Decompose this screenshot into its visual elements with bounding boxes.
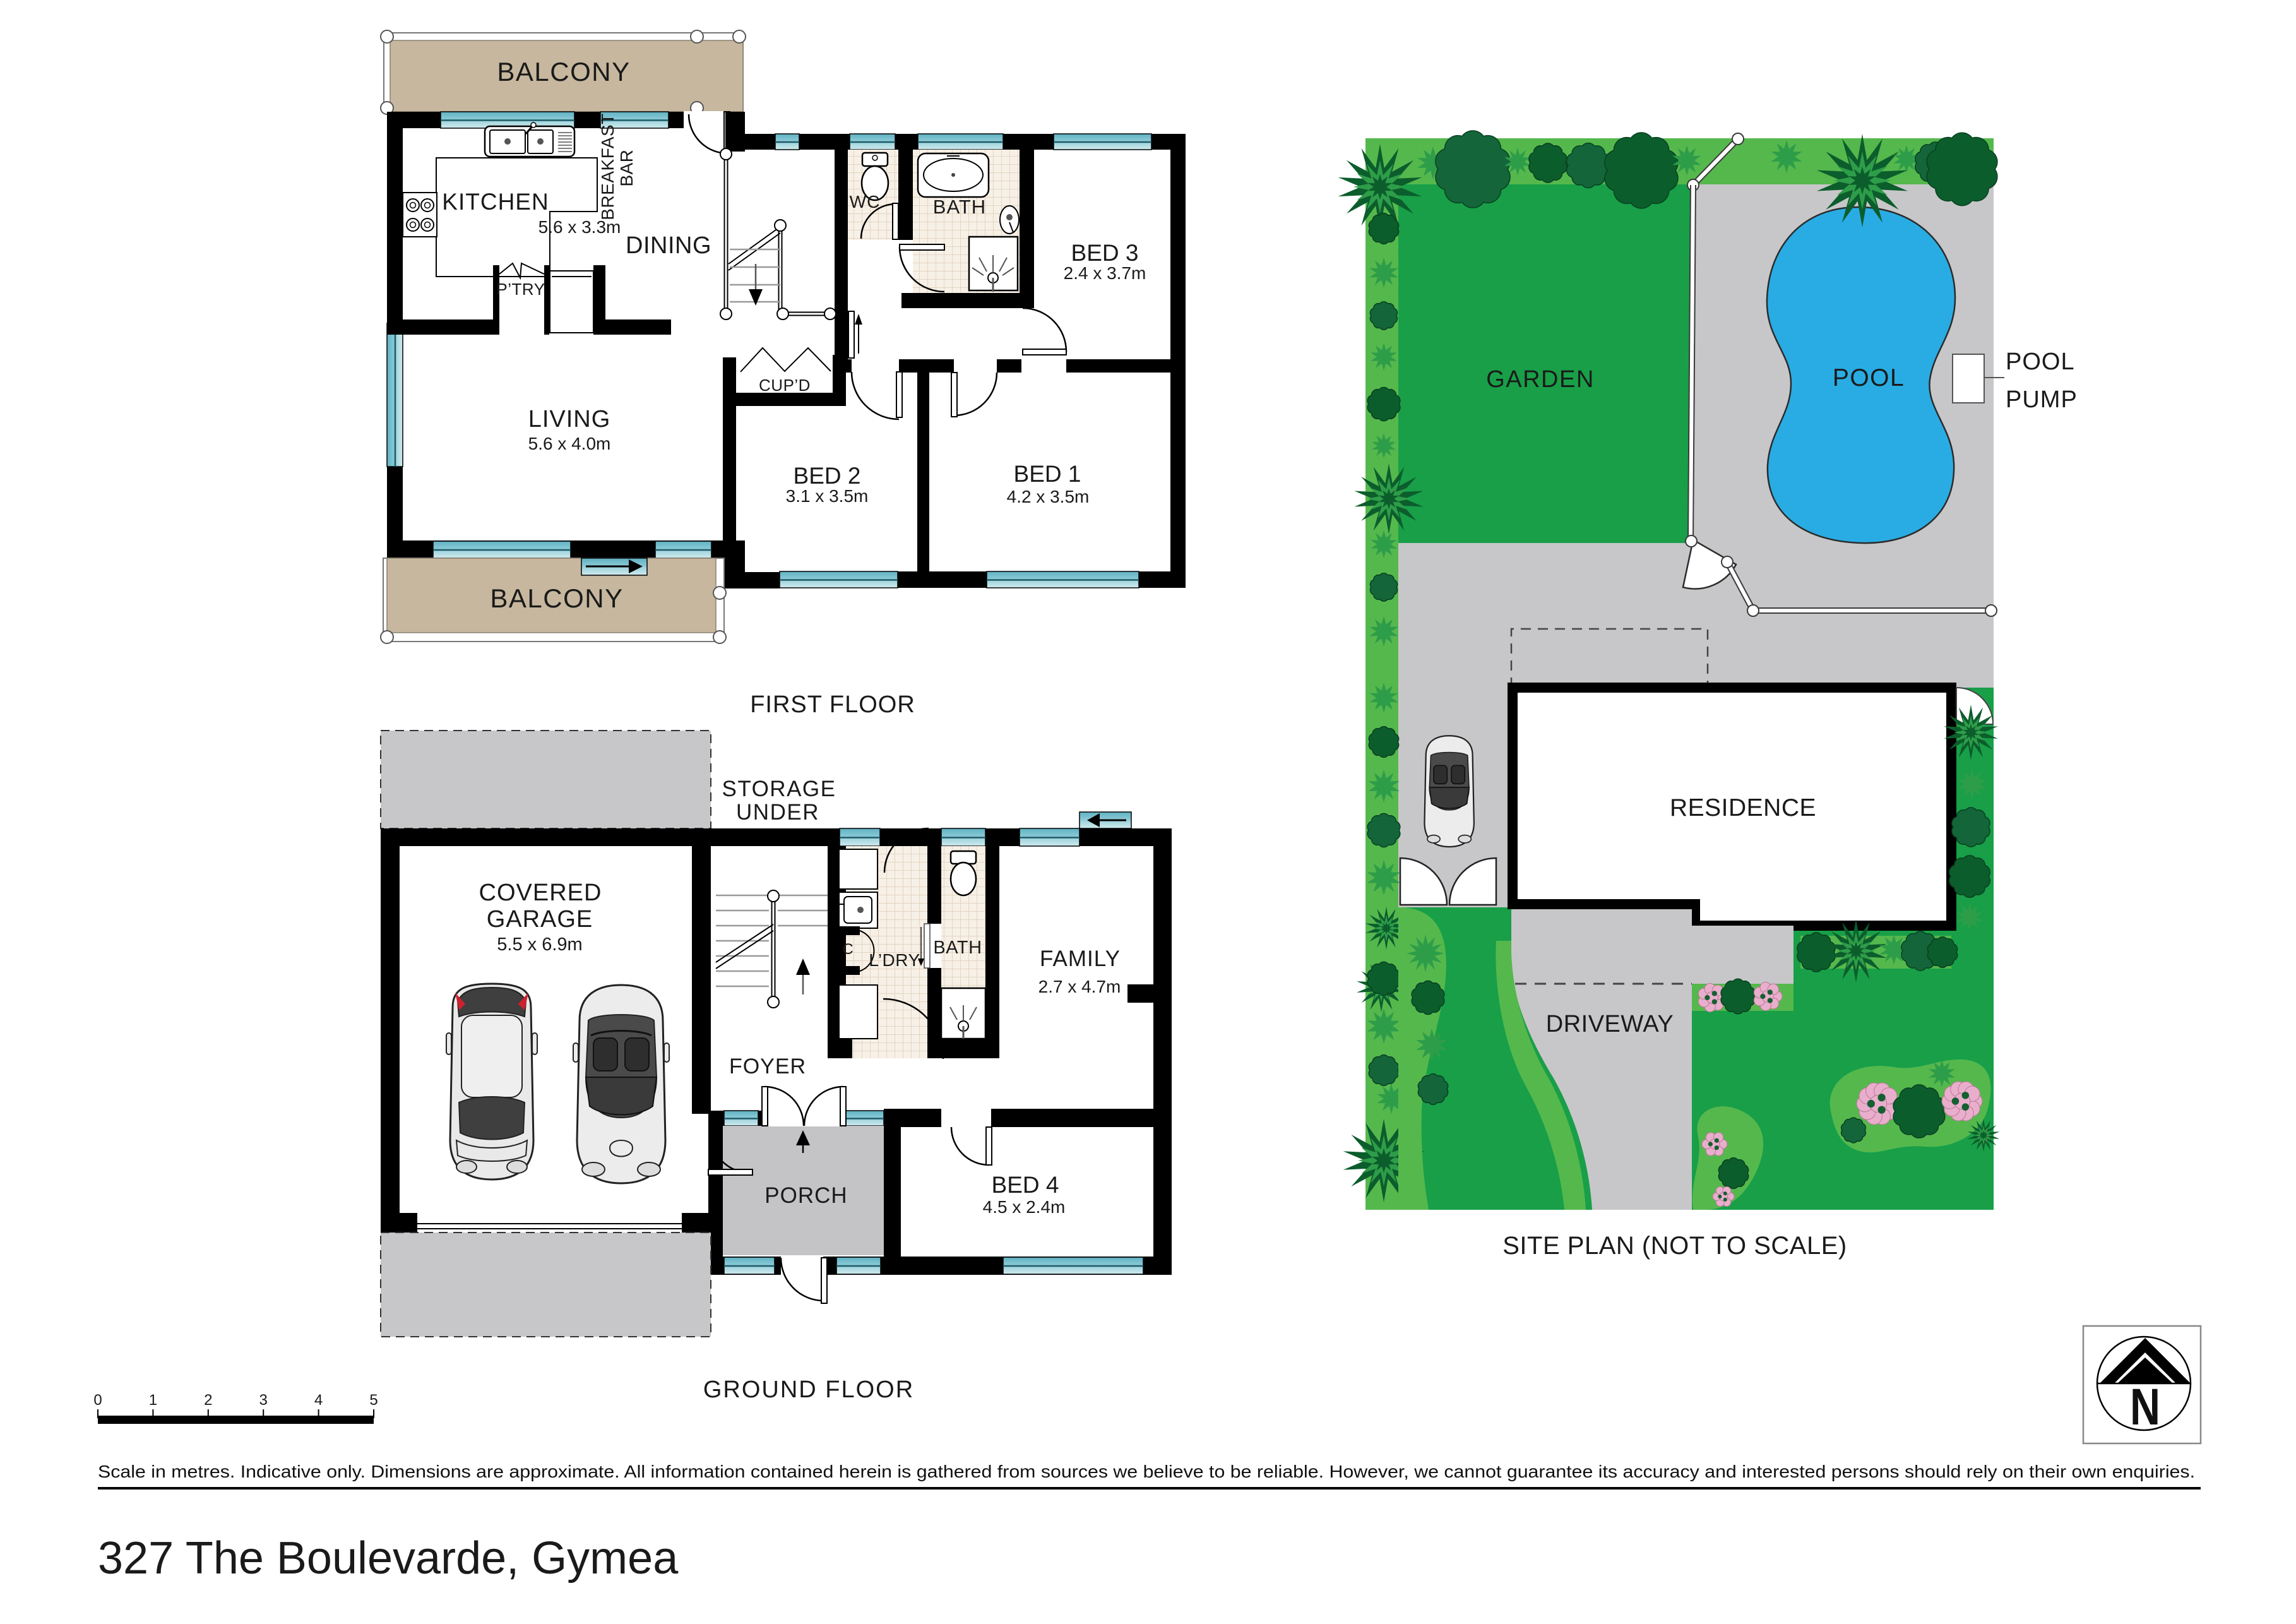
- svg-text:BED 2: BED 2: [794, 463, 861, 489]
- svg-text:2.7 x 4.7m: 2.7 x 4.7m: [1038, 977, 1121, 996]
- svg-text:GARDEN: GARDEN: [1486, 366, 1595, 393]
- svg-text:CUP’D: CUP’D: [759, 376, 811, 395]
- svg-text:BAR: BAR: [617, 149, 636, 186]
- svg-text:FOYER: FOYER: [729, 1054, 806, 1078]
- svg-text:Scale in metres. Indicative on: Scale in metres. Indicative only. Dimens…: [98, 1462, 2195, 1481]
- svg-text:2.4 x 3.7m: 2.4 x 3.7m: [1064, 263, 1146, 283]
- svg-text:PORCH: PORCH: [764, 1183, 847, 1208]
- svg-text:5.6 x 4.0m: 5.6 x 4.0m: [528, 434, 611, 453]
- svg-text:POOL: POOL: [2006, 349, 2075, 375]
- svg-text:3: 3: [259, 1392, 268, 1409]
- svg-text:BED 1: BED 1: [1014, 461, 1081, 487]
- svg-text:BALCONY: BALCONY: [490, 583, 623, 613]
- svg-text:DRIVEWAY: DRIVEWAY: [1546, 1011, 1674, 1037]
- svg-text:5.5 x 6.9m: 5.5 x 6.9m: [497, 934, 582, 955]
- svg-text:C: C: [842, 941, 853, 958]
- svg-text:2: 2: [204, 1392, 212, 1409]
- svg-text:N: N: [2130, 1378, 2160, 1436]
- svg-text:COVERED: COVERED: [479, 880, 602, 906]
- svg-text:BED 4: BED 4: [992, 1172, 1059, 1198]
- svg-text:4: 4: [314, 1392, 323, 1409]
- svg-text:0: 0: [93, 1392, 102, 1409]
- svg-text:PUMP: PUMP: [2006, 386, 2078, 413]
- svg-text:L’DRY: L’DRY: [869, 950, 920, 970]
- svg-text:KITCHEN: KITCHEN: [442, 189, 549, 215]
- svg-text:BREAKFAST: BREAKFAST: [598, 113, 617, 220]
- svg-text:P’TRY: P’TRY: [496, 280, 545, 299]
- svg-text:DINING: DINING: [626, 232, 711, 259]
- svg-text:STORAGE: STORAGE: [722, 777, 836, 801]
- svg-text:3.1 x 3.5m: 3.1 x 3.5m: [786, 486, 869, 506]
- svg-text:BATH: BATH: [933, 196, 986, 218]
- svg-text:LIVING: LIVING: [528, 406, 611, 433]
- svg-text:BATH: BATH: [933, 938, 982, 958]
- svg-text:BALCONY: BALCONY: [497, 57, 630, 87]
- svg-text:WC: WC: [850, 192, 881, 212]
- svg-text:1: 1: [149, 1392, 157, 1409]
- svg-text:SITE PLAN (NOT TO SCALE): SITE PLAN (NOT TO SCALE): [1502, 1232, 1847, 1260]
- svg-text:RESIDENCE: RESIDENCE: [1670, 794, 1816, 821]
- svg-text:GARAGE: GARAGE: [487, 906, 593, 933]
- svg-text:POOL: POOL: [1833, 364, 1905, 391]
- svg-text:GROUND FLOOR: GROUND FLOOR: [703, 1376, 914, 1403]
- svg-text:5: 5: [369, 1392, 378, 1409]
- svg-text:327 The Boulevarde, Gymea: 327 The Boulevarde, Gymea: [98, 1533, 679, 1584]
- svg-text:FIRST FLOOR: FIRST FLOOR: [750, 691, 915, 718]
- svg-text:4.5 x 2.4m: 4.5 x 2.4m: [983, 1197, 1066, 1217]
- svg-text:4.2 x 3.5m: 4.2 x 3.5m: [1007, 487, 1090, 506]
- svg-text:BED 3: BED 3: [1071, 240, 1139, 266]
- svg-text:UNDER: UNDER: [736, 800, 819, 825]
- svg-text:FAMILY: FAMILY: [1040, 946, 1121, 971]
